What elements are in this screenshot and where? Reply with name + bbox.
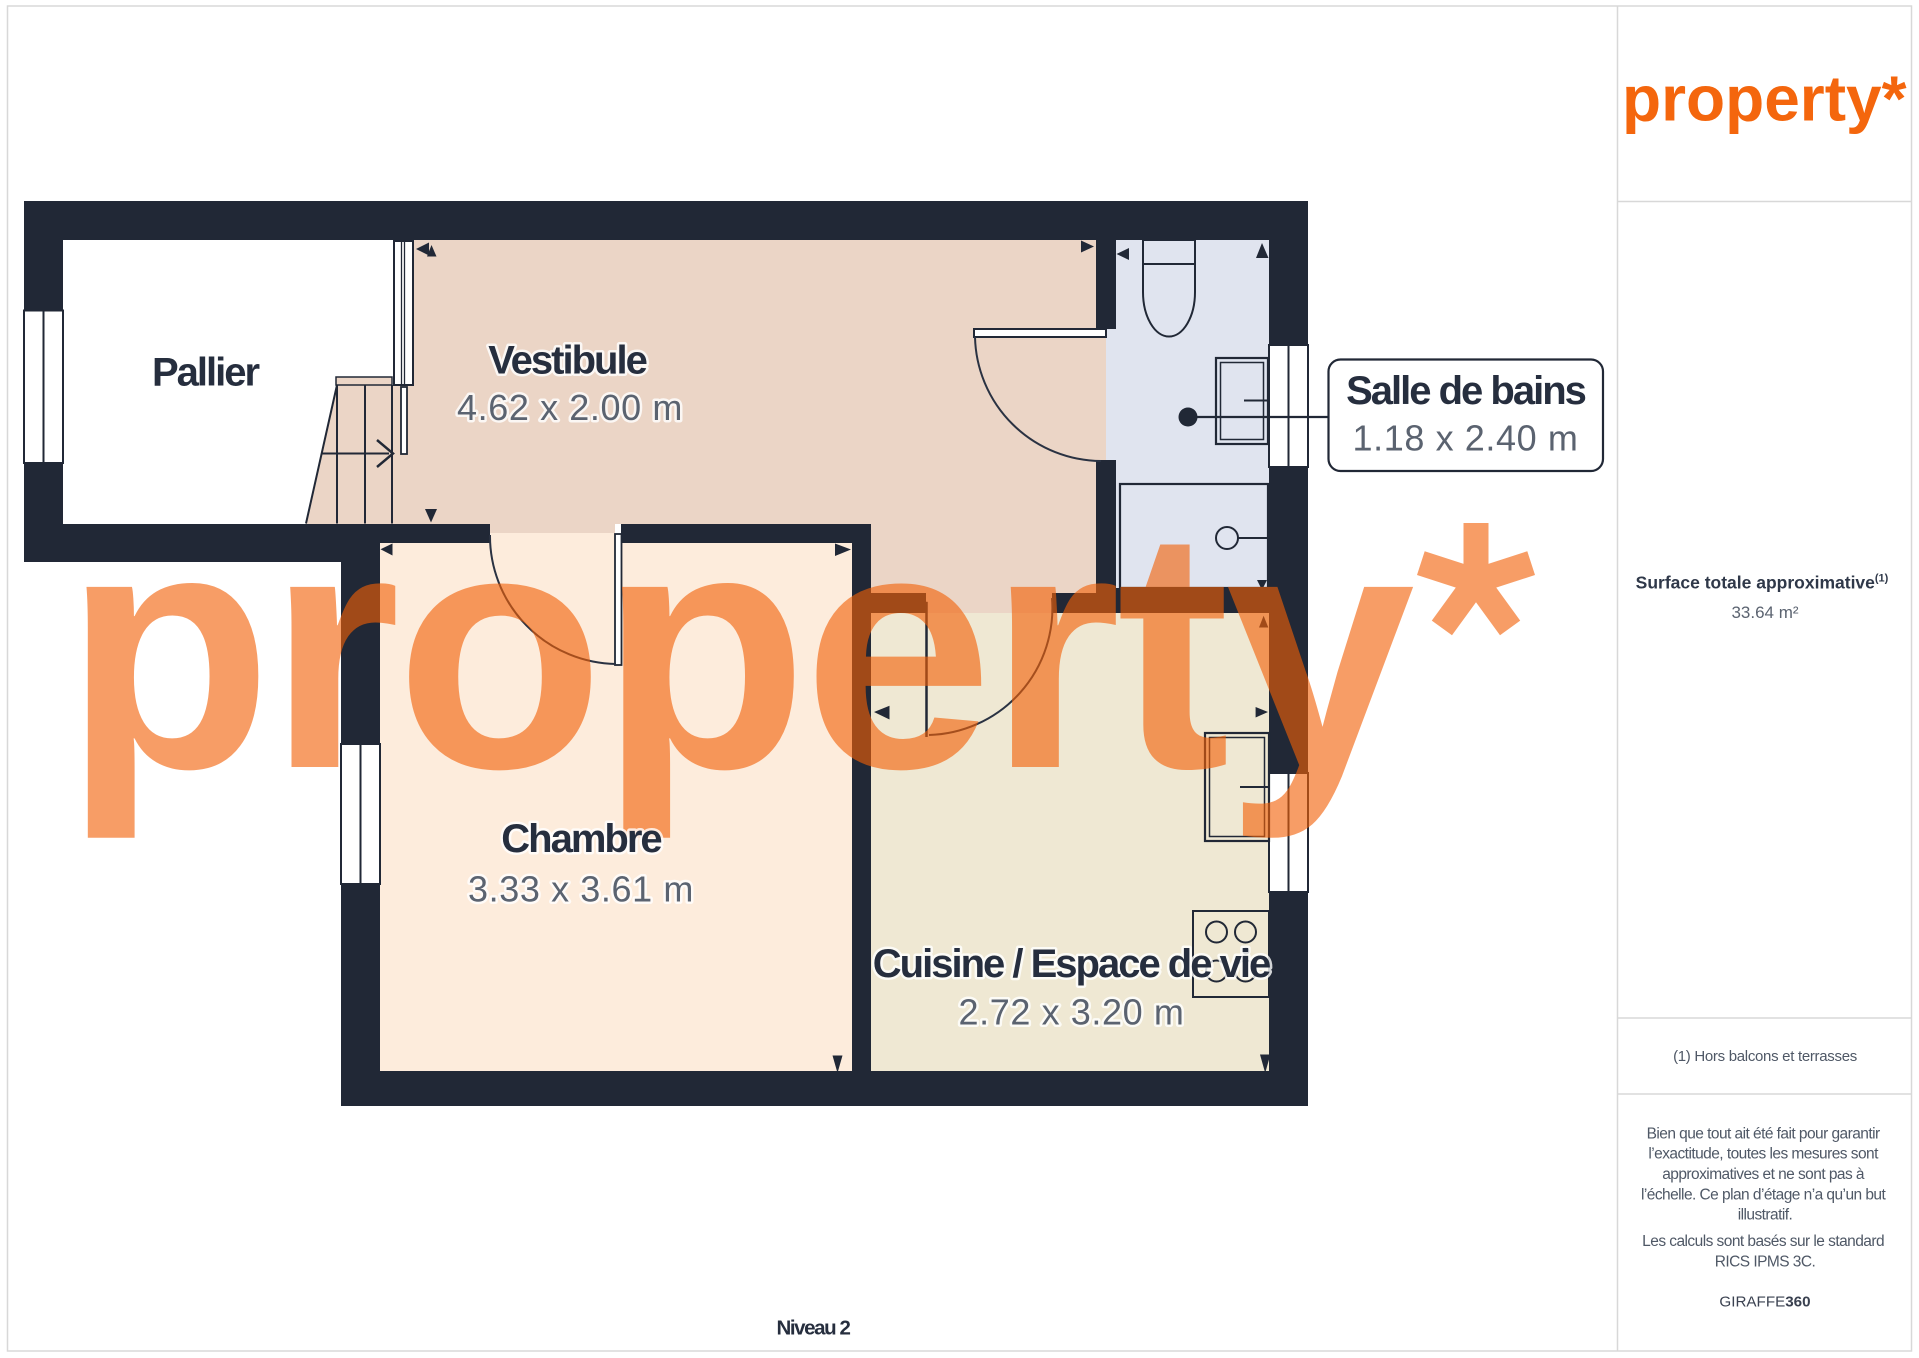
svg-text:property*: property* bbox=[1622, 63, 1907, 135]
svg-text:Chambre: Chambre bbox=[501, 817, 661, 861]
svg-text:(1) Hors balcons et terrasses: (1) Hors balcons et terrasses bbox=[1673, 1048, 1857, 1065]
svg-text:Surface totale approximative(1: Surface totale approximative(1) bbox=[1636, 573, 1889, 593]
svg-text:4.62 x 2.00 m: 4.62 x 2.00 m bbox=[457, 387, 683, 428]
svg-text:GIRAFFE360: GIRAFFE360 bbox=[1719, 1294, 1810, 1311]
svg-text:Vestibule: Vestibule bbox=[488, 339, 646, 383]
svg-text:property: property bbox=[64, 459, 1417, 842]
svg-text:Pallier: Pallier bbox=[152, 351, 260, 395]
svg-text:Salle de bains: Salle de bains bbox=[1346, 369, 1586, 413]
svg-text:Cuisine / Espace de vie: Cuisine / Espace de vie bbox=[873, 942, 1270, 986]
svg-text:1.18 x 2.40 m: 1.18 x 2.40 m bbox=[1353, 418, 1579, 459]
svg-text:Niveau 2: Niveau 2 bbox=[776, 1317, 850, 1340]
svg-text:3.33 x 3.61 m: 3.33 x 3.61 m bbox=[468, 869, 694, 910]
svg-text:33.64 m²: 33.64 m² bbox=[1731, 603, 1798, 622]
svg-text:2.72 x 3.20 m: 2.72 x 3.20 m bbox=[959, 992, 1185, 1033]
